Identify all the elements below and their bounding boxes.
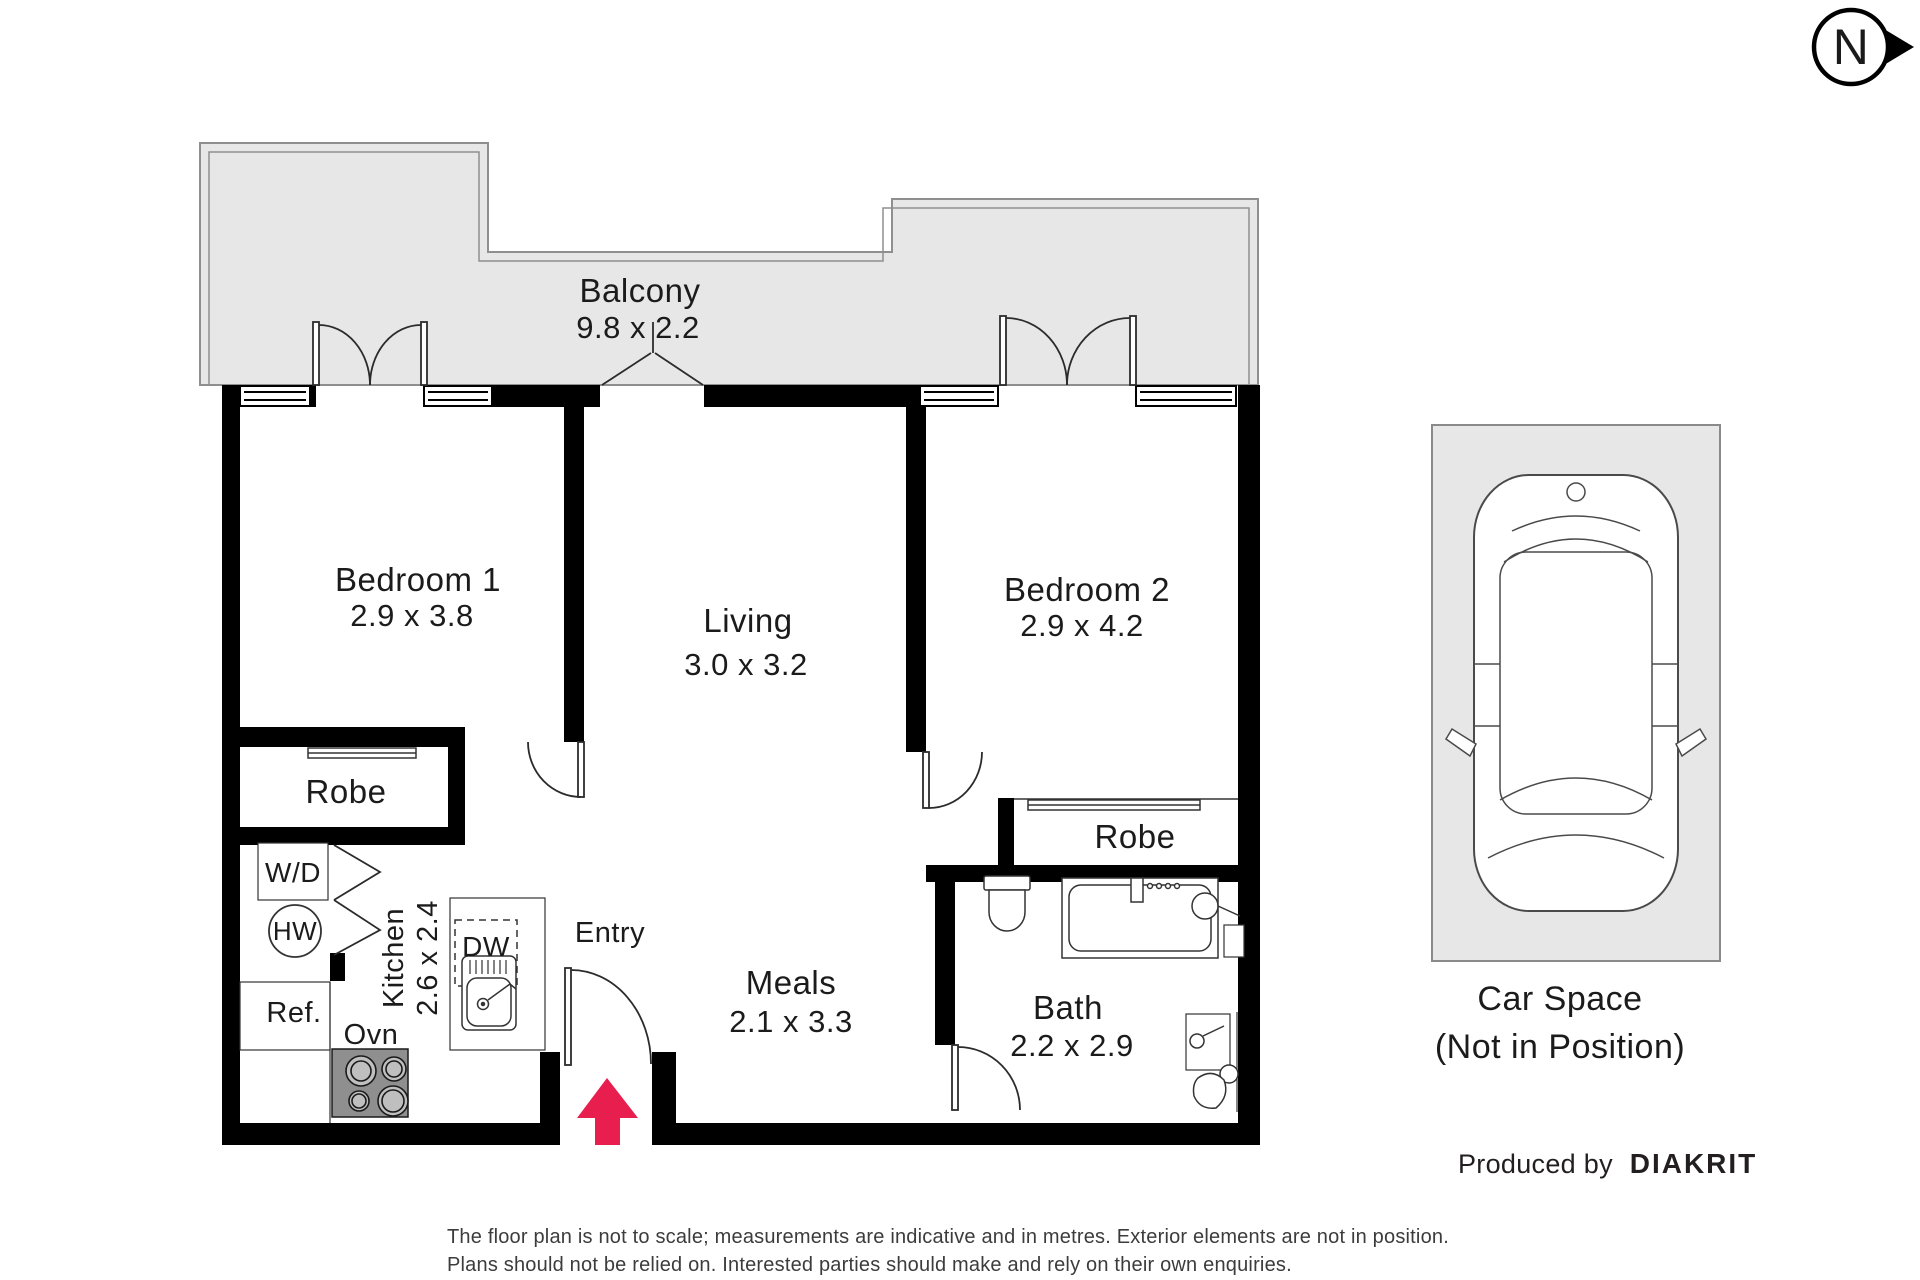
bath-dims: 2.2 x 2.9	[1010, 1028, 1133, 1063]
wall-bath-left	[935, 882, 955, 1045]
bedroom2-door-swing	[929, 752, 982, 808]
wall-robe1-top	[240, 727, 465, 747]
robe1-label: Robe	[306, 773, 387, 810]
disclaimer-line2: Plans should not be relied on. Intereste…	[447, 1254, 1292, 1276]
disclaimer-line1: The floor plan is not to scale; measurem…	[447, 1226, 1449, 1248]
meals-label: Meals	[746, 964, 837, 1001]
wall-robe1-bottom	[222, 827, 465, 845]
entry-direction-arrow	[577, 1078, 638, 1145]
wall-right	[1238, 385, 1260, 1145]
producer-credit: Produced by DIAKRIT	[1458, 1148, 1757, 1179]
entry-jamb-left	[540, 1052, 560, 1145]
car-space-caption: Car Space (Not in Position)	[1435, 980, 1685, 1066]
wd-bifold-doors	[334, 845, 380, 955]
bedroom2-door-leaf	[923, 752, 929, 808]
balcony-door2-leaf-left	[1000, 316, 1006, 385]
fridge-label: Ref.	[266, 997, 321, 1029]
wall-wd-stub	[330, 953, 345, 981]
stove-cooktop	[332, 1049, 408, 1117]
balcony-dims: 9.8 x 2.2	[576, 310, 699, 345]
bathtub	[1062, 878, 1244, 958]
bedroom2-label: Bedroom 2	[1004, 571, 1170, 608]
wall-bottom-right	[674, 1123, 1260, 1145]
bath-door-leaf	[952, 1045, 958, 1110]
wall-left	[222, 385, 240, 1145]
north-label: N	[1833, 19, 1870, 75]
car-space-title: Car Space	[1477, 980, 1642, 1018]
toilet	[984, 876, 1030, 931]
credit-prefix: Produced by	[1458, 1149, 1613, 1179]
oven-label: Ovn	[344, 1019, 399, 1051]
wall-robe1-right	[448, 747, 465, 829]
balcony-door1-leaf-left	[313, 322, 319, 385]
car-top-view-icon	[1446, 475, 1706, 911]
entry-door-leaf	[565, 968, 571, 1065]
meals-dims: 2.1 x 3.3	[729, 1004, 852, 1039]
window-bedroom2-left	[920, 386, 998, 406]
entry-label: Entry	[575, 917, 645, 949]
bedroom2-dims: 2.9 x 4.2	[1020, 608, 1143, 643]
balcony-door2-leaf-right	[1130, 316, 1136, 385]
north-indicator-icon: N	[1814, 10, 1914, 84]
living-label: Living	[703, 602, 792, 639]
bath-label: Bath	[1033, 989, 1103, 1026]
window-bedroom1-right	[424, 386, 492, 406]
robe2-rail	[1028, 800, 1200, 810]
wall-bottom-left	[222, 1123, 540, 1145]
bedroom1-label: Bedroom 1	[335, 561, 501, 598]
plant-icon	[1194, 1065, 1239, 1108]
bedroom1-dims: 2.9 x 3.8	[350, 598, 473, 633]
diakrit-logo-text: DIAKRIT	[1630, 1148, 1758, 1179]
robe2-label: Robe	[1095, 818, 1176, 855]
kitchen-label: Kitchen	[378, 908, 410, 1008]
bedroom1-door-leaf	[578, 742, 584, 797]
wall-robe2-left	[998, 798, 1014, 872]
window-bedroom1-left	[240, 386, 310, 406]
window-bedroom2-right	[1136, 386, 1236, 406]
floor-plan: N Balcony 9.8 x 2.2 Bedroom 1 2.9 x 3.8 …	[0, 0, 1920, 1280]
hot-water-label: HW	[273, 916, 317, 946]
floor-plan-page: N Balcony 9.8 x 2.2 Bedroom 1 2.9 x 3.8 …	[0, 0, 1920, 1280]
robe1-rail	[308, 748, 416, 758]
bath-vanity	[1186, 1012, 1238, 1112]
living-dims: 3.0 x 3.2	[684, 647, 807, 682]
balcony-door1-leaf-right	[421, 322, 427, 385]
bedroom1-door-swing	[528, 742, 581, 797]
dishwasher-label: DW	[462, 931, 510, 962]
washer-dryer-label: W/D	[265, 857, 321, 888]
entry-door-swing	[571, 970, 651, 1064]
kitchen-sink	[462, 956, 516, 1030]
balcony-label: Balcony	[580, 272, 701, 309]
car-space-area	[1432, 425, 1720, 961]
wall-bed1-living	[564, 407, 584, 742]
kitchen-dims: 2.6 x 2.4	[412, 900, 444, 1016]
entry-jamb-right	[652, 1052, 676, 1145]
car-space-subtitle: (Not in Position)	[1435, 1028, 1685, 1066]
disclaimer: The floor plan is not to scale; measurem…	[447, 1226, 1449, 1276]
wall-top-seg2	[492, 385, 600, 407]
wall-top-seg3	[704, 385, 920, 407]
wall-living-bed2	[906, 407, 926, 752]
